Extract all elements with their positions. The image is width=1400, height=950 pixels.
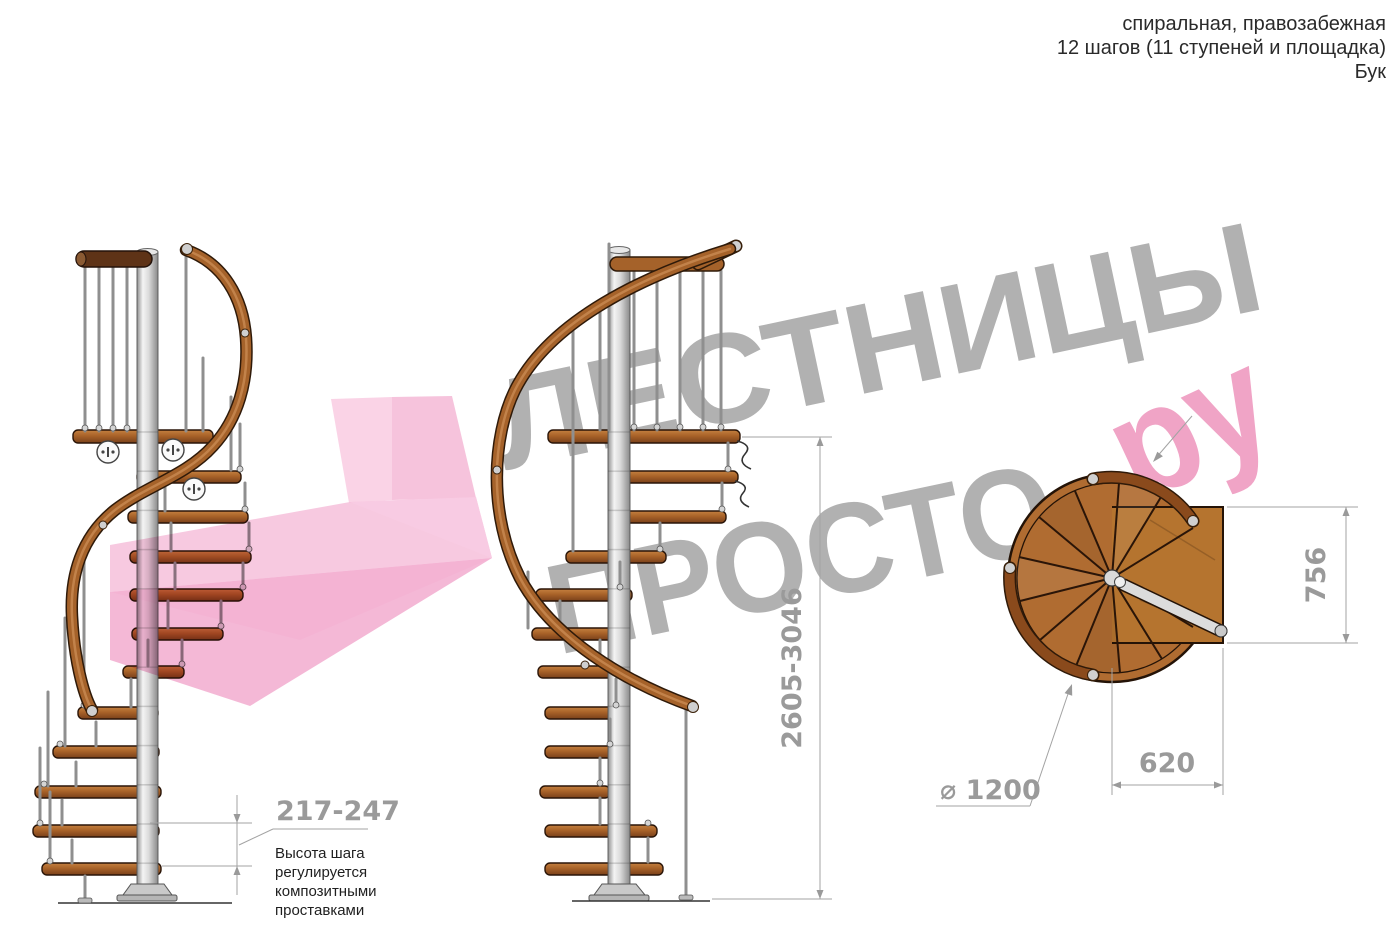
spec-header: спиральная, правозабежная 12 шагов (11 с… (1057, 12, 1386, 84)
svg-text:композитными: композитными (275, 883, 377, 900)
dimension-diameter: ⌀ 1200 (936, 684, 1072, 806)
diameter-label: ⌀ 1200 (940, 775, 1041, 806)
spec-material: Бук (1057, 60, 1386, 84)
landing-width-label: 620 (1139, 748, 1195, 779)
drawing-sheet: ЛЕСТНИЦЫ ПРОСТО ру (0, 0, 1400, 950)
svg-text:регулируется: регулируется (275, 864, 367, 881)
drawing-canvas: ЛЕСТНИЦЫ ПРОСТО ру (0, 0, 1400, 950)
svg-text:проставками: проставками (275, 902, 364, 919)
dimension-landing-depth: 756 (1227, 507, 1358, 643)
total-height-label: 2605-3046 (777, 587, 808, 749)
platform-handrail-front (76, 251, 152, 267)
step-height-note: Высота шага регулируется композитными пр… (275, 845, 377, 919)
svg-text:Высота шага: Высота шага (275, 845, 365, 862)
spec-steps: 12 шагов (11 ступеней и площадка) (1057, 36, 1386, 60)
dimension-step-height: 217-247 Высота шага регулируется компози… (150, 795, 400, 919)
step-height-label: 217-247 (276, 796, 400, 827)
spec-type: спиральная, правозабежная (1057, 12, 1386, 36)
landing-depth-label: 756 (1301, 547, 1332, 603)
